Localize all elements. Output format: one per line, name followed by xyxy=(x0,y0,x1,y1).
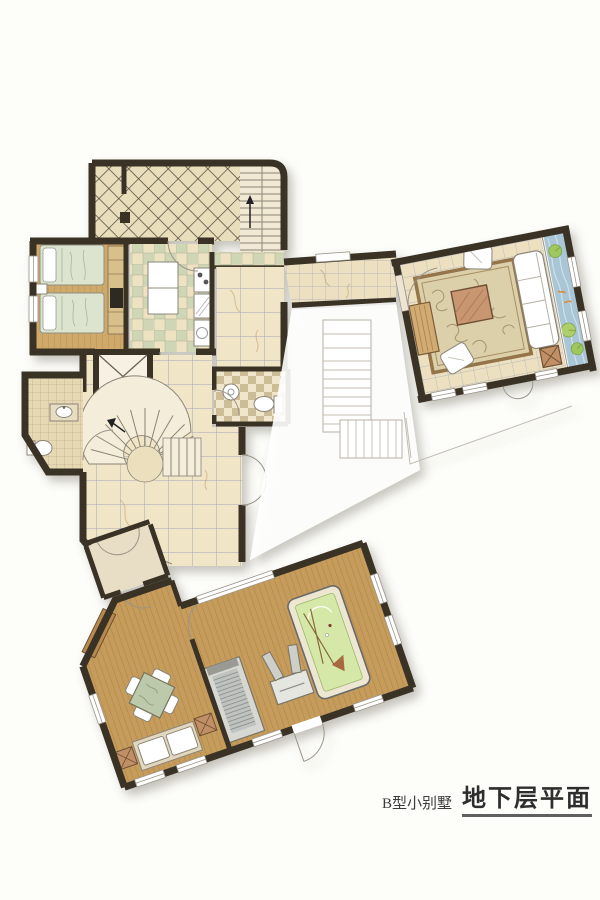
wardrobe xyxy=(108,246,126,334)
tv xyxy=(110,288,123,308)
scanned-floorplan-page: B型小别墅 地下层平面 xyxy=(0,0,600,900)
floor-plan xyxy=(25,163,600,821)
plan-title: B型小别墅 地下层平面 xyxy=(352,778,592,817)
title-underline xyxy=(462,814,592,817)
appliances xyxy=(194,268,212,346)
side-table xyxy=(540,345,562,367)
bed xyxy=(40,293,104,333)
vanity-sink xyxy=(50,404,78,421)
plan-name-label: 地下层平面 xyxy=(462,786,592,812)
villa-type-label: B型小别墅 xyxy=(382,792,452,817)
living-room xyxy=(391,225,600,418)
terrace-outline xyxy=(404,406,572,464)
floor-plan-svg xyxy=(0,0,600,900)
sink xyxy=(223,384,239,400)
plan-name-wrap: 地下层平面 xyxy=(462,778,592,817)
bed xyxy=(40,245,104,285)
